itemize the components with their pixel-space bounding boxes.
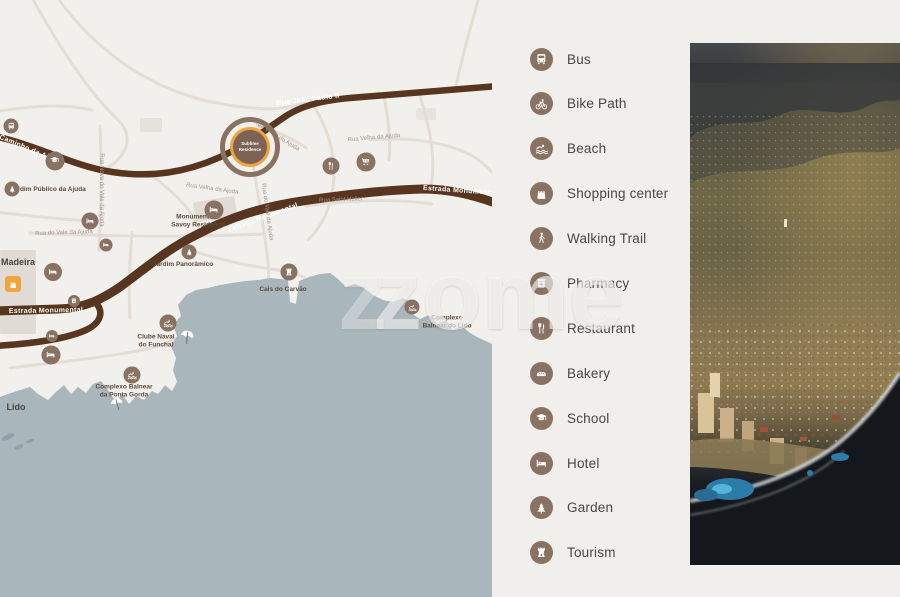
legend-label: School (567, 411, 609, 426)
bed-icon (530, 452, 553, 475)
map-graphic (0, 0, 492, 597)
legend-label: Garden (567, 500, 613, 515)
pine-tree-icon (530, 496, 553, 519)
shopping-bag-icon (530, 182, 553, 205)
legend-item-beach: Beach (530, 137, 690, 161)
legend-label: Hotel (567, 456, 600, 471)
neighborhood-map[interactable]: Rua João Paulo IICaminho da AjudaEstrada… (0, 0, 492, 597)
legend-item-shopping-center: Shopping center (530, 182, 690, 206)
legend-item-garden: Garden (530, 496, 690, 520)
legend-item-bus: Bus (530, 47, 690, 71)
legend-label: Beach (567, 141, 606, 156)
legend-label: Tourism (567, 545, 616, 560)
legend-label: Bike Path (567, 96, 627, 111)
pharmacy-icon (530, 272, 553, 295)
fork-knife-icon (530, 317, 553, 340)
legend-item-pharmacy: Pharmacy (530, 271, 690, 295)
legend-item-tourism: Tourism (530, 541, 690, 565)
legend-label: Bakery (567, 366, 610, 381)
bike-icon (530, 92, 553, 115)
aerial-photo-graphic (690, 43, 900, 565)
bus-icon (530, 48, 553, 71)
legend-item-bike-path: Bike Path (530, 92, 690, 116)
map-legend: Bus Bike Path Beach Shopping center Walk… (530, 47, 690, 586)
property-marker: Sublime Residence (220, 117, 280, 177)
swimmer-icon (530, 137, 553, 160)
legend-item-bakery: Bakery (530, 361, 690, 385)
property-marker-core: Sublime Residence (230, 127, 270, 167)
legend-item-restaurant: Restaurant (530, 316, 690, 340)
legend-item-hotel: Hotel (530, 451, 690, 475)
legend-label: Pharmacy (567, 276, 629, 291)
pedestrian-icon (530, 227, 553, 250)
castle-tower-icon (530, 541, 553, 564)
legend-label: Shopping center (567, 186, 668, 201)
legend-item-school: School (530, 406, 690, 430)
bread-icon (530, 362, 553, 385)
legend-label: Bus (567, 52, 591, 67)
listing-media-panel: Rua João Paulo IICaminho da AjudaEstrada… (0, 0, 900, 597)
marker-label-line2: Residence (239, 147, 262, 153)
aerial-photo[interactable] (690, 43, 900, 565)
graduation-cap-icon (530, 407, 553, 430)
legend-label: Restaurant (567, 321, 635, 336)
legend-label: Walking Trail (567, 231, 646, 246)
legend-item-walking-trail: Walking Trail (530, 227, 690, 251)
